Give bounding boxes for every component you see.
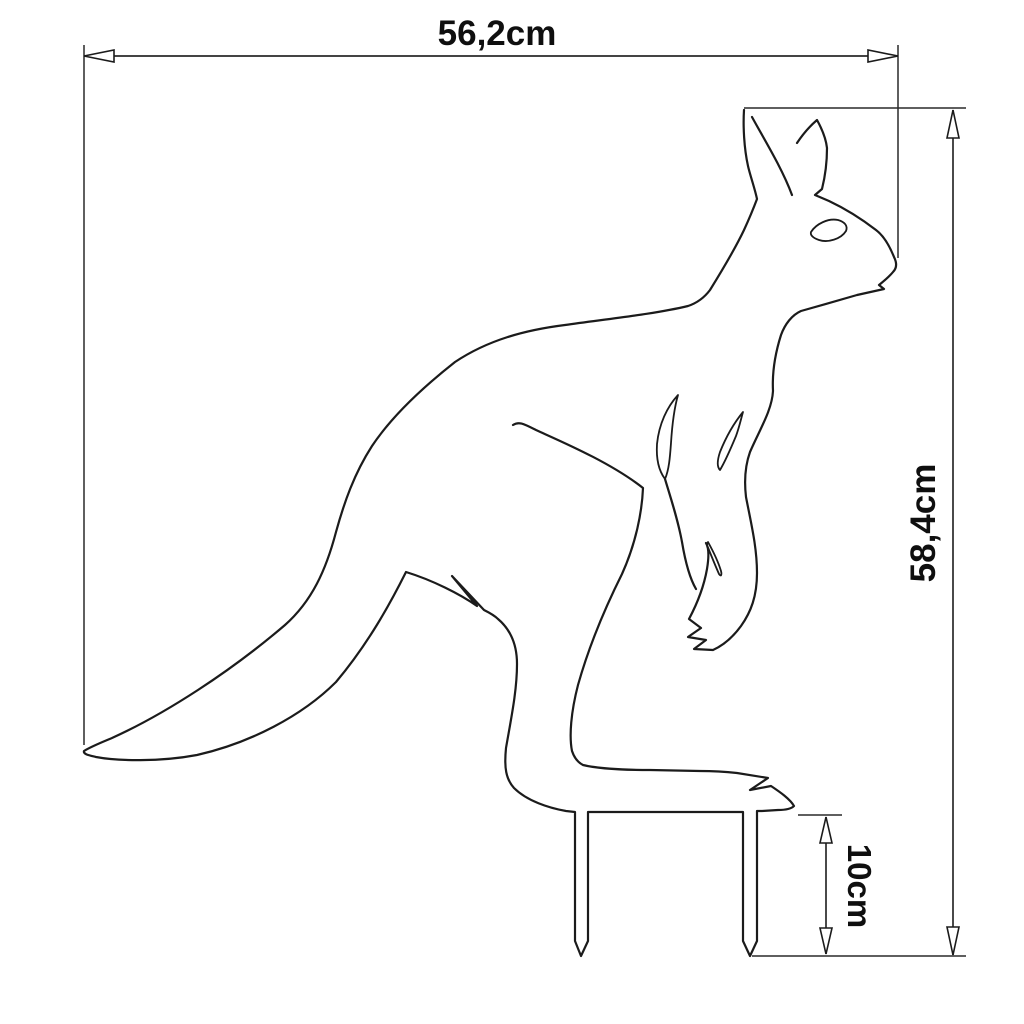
arrowhead-down — [947, 927, 959, 955]
arm-slit-right — [718, 412, 743, 470]
kangaroo-silhouette — [84, 110, 896, 956]
height-label: 58,4cm — [904, 464, 943, 583]
dimension-width: 56,2cm — [84, 14, 898, 745]
arm-slit-left — [657, 395, 678, 479]
dimension-stake: 10cm — [798, 815, 878, 954]
arrowhead-up — [947, 110, 959, 138]
arrowhead-left — [84, 50, 114, 62]
eye-cutout — [811, 220, 847, 241]
kangaroo-body-outline — [84, 110, 794, 956]
arrowhead-stake-down — [820, 928, 832, 954]
forearm-line — [665, 479, 696, 589]
dimension-height: 58,4cm — [744, 108, 966, 956]
width-label: 56,2cm — [438, 14, 557, 53]
ear-slit-line — [752, 117, 792, 195]
arrowhead-stake-up — [820, 817, 832, 843]
arrowhead-right — [868, 50, 898, 62]
diagram-svg: 56,2cm 58,4cm 10cm — [0, 0, 1024, 1024]
dimension-diagram: 56,2cm 58,4cm 10cm — [0, 0, 1024, 1024]
stake-label: 10cm — [841, 844, 878, 928]
